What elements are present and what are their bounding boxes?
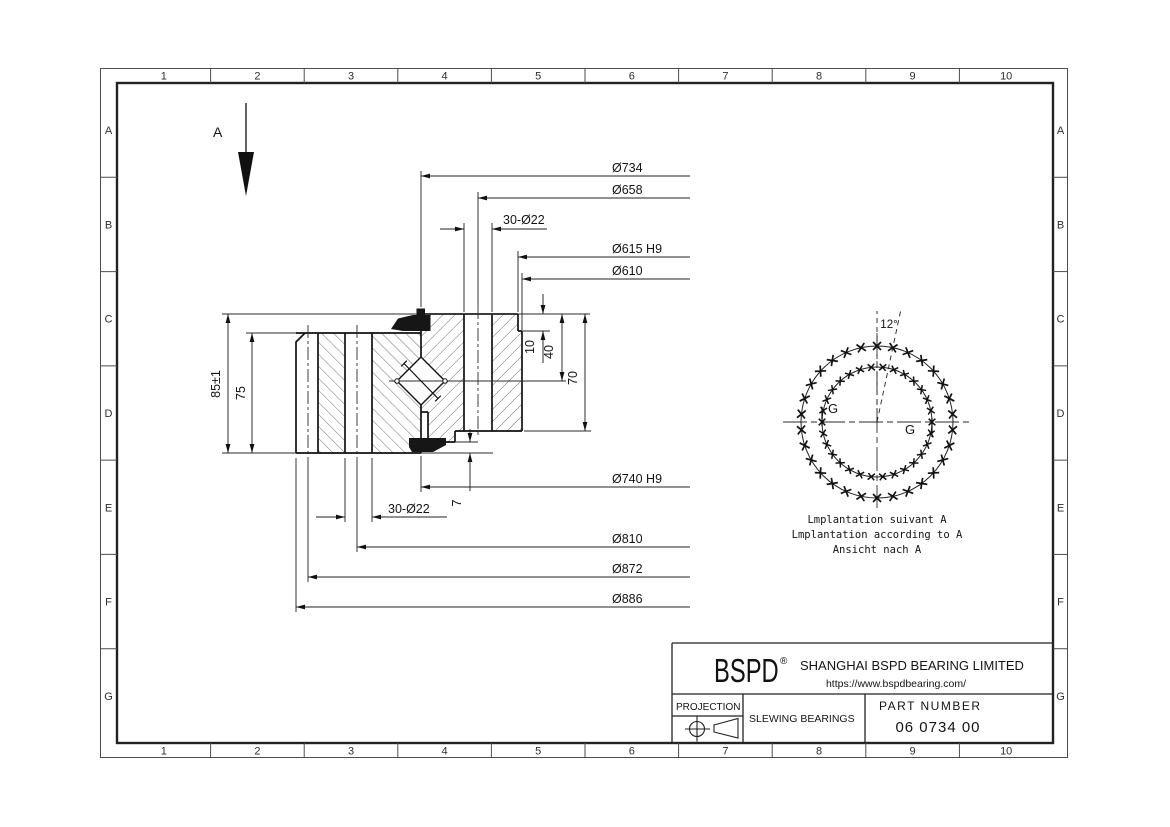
bolt-hole-mark-icon bbox=[828, 450, 837, 459]
frame-column-label: 9 bbox=[910, 71, 916, 83]
bolt-hole-mark-icon bbox=[916, 355, 927, 366]
arrowhead-icon bbox=[492, 227, 501, 232]
bolt-hole-mark-icon bbox=[841, 486, 852, 497]
arrowhead-icon bbox=[541, 331, 546, 340]
dim-label: Ø658 bbox=[612, 183, 643, 197]
frame-row-label: C bbox=[1057, 314, 1065, 326]
bolt-hole-mark-icon bbox=[917, 385, 926, 394]
dim-label: Ø615 H9 bbox=[612, 242, 662, 256]
frame-row-label: B bbox=[1057, 219, 1064, 231]
dim-label: 10 bbox=[523, 340, 537, 354]
arrowhead-icon bbox=[468, 433, 473, 442]
dim-label: Ø740 H9 bbox=[612, 472, 662, 486]
frame-column-label: 3 bbox=[348, 746, 354, 758]
bolt-hole-mark-icon bbox=[856, 343, 865, 352]
frame-column-label: 5 bbox=[535, 71, 541, 83]
frame-row-label: G bbox=[104, 691, 113, 703]
frame-column-label: 2 bbox=[254, 71, 260, 83]
frame-column-label: 5 bbox=[535, 746, 541, 758]
frame-column-label: 8 bbox=[816, 746, 822, 758]
frame-column-label: 7 bbox=[722, 746, 728, 758]
frame-row-label: E bbox=[1057, 502, 1064, 514]
bolt-hole-mark-icon bbox=[944, 440, 954, 450]
bolt-hole-mark-icon bbox=[890, 366, 898, 374]
caption-line: Lmplantation suivant A bbox=[807, 514, 947, 526]
dim-label: 7 bbox=[450, 499, 464, 506]
frame-column-label: 1 bbox=[161, 71, 167, 83]
frame-row-label: F bbox=[105, 597, 112, 609]
grease-label-right: G bbox=[905, 422, 915, 437]
frame-column-label: 9 bbox=[910, 746, 916, 758]
dim-label: Ø810 bbox=[612, 532, 643, 546]
arrowhead-icon bbox=[583, 314, 588, 323]
frame-row-label: A bbox=[105, 125, 113, 137]
dim-label: Ø886 bbox=[612, 592, 643, 606]
arrowhead-icon bbox=[455, 227, 464, 232]
bolt-hole-mark-icon bbox=[903, 486, 914, 497]
bolt-hole-mark-icon bbox=[900, 465, 909, 474]
bolt-hole-mark-icon bbox=[800, 393, 810, 403]
bolt-hole-mark-icon bbox=[819, 407, 827, 415]
engineering-drawing-sheet: 1122334455667788991010AABBCCDDEEFFGG A bbox=[0, 0, 1170, 827]
arrowhead-icon bbox=[522, 277, 531, 282]
dim-label: 30-Ø22 bbox=[388, 502, 430, 516]
frame-column-label: 4 bbox=[442, 71, 448, 83]
dim-label: 75 bbox=[234, 386, 248, 400]
arrowhead-icon bbox=[357, 545, 366, 550]
bolt-hole-mark-icon bbox=[927, 429, 935, 437]
dim-label: 40 bbox=[542, 345, 556, 359]
dim-label: 85±1 bbox=[209, 370, 223, 398]
arrowhead-icon bbox=[226, 444, 231, 453]
frame-column-label: 1 bbox=[161, 746, 167, 758]
frame-column-label: 8 bbox=[816, 71, 822, 83]
arrowhead-icon bbox=[308, 575, 317, 580]
bolt-hole-mark-icon bbox=[900, 370, 909, 379]
bolt-hole-mark-icon bbox=[888, 492, 897, 501]
frame-column-label: 10 bbox=[1000, 71, 1012, 83]
frame-row-label: E bbox=[105, 502, 112, 514]
bolt-hole-mark-icon bbox=[827, 355, 838, 366]
view-arrow-label: A bbox=[213, 124, 223, 140]
bolt-hole-mark-icon bbox=[923, 395, 932, 404]
bolt-hole-mark-icon bbox=[806, 455, 817, 466]
frame-row-label: D bbox=[1057, 408, 1065, 420]
arrowhead-icon bbox=[468, 453, 473, 462]
dim-label: 30-Ø22 bbox=[503, 213, 545, 227]
bolt-hole-mark-icon bbox=[800, 440, 810, 450]
outer-ring-hatch bbox=[318, 333, 421, 453]
bolt-hole-mark-icon bbox=[845, 370, 854, 379]
arrowhead-icon bbox=[541, 305, 546, 314]
frame-column-label: 6 bbox=[629, 71, 635, 83]
projection-label: PROJECTION bbox=[676, 702, 740, 713]
hole-angle-label: 12° bbox=[880, 319, 897, 331]
caption-line: Lmplantation according to A bbox=[792, 529, 963, 541]
frame-row-label: C bbox=[105, 314, 113, 326]
bolt-hole-mark-icon bbox=[827, 478, 838, 489]
bolt-hole-mark-icon bbox=[923, 440, 932, 449]
frame-row-label: B bbox=[105, 219, 112, 231]
arrowhead-icon bbox=[250, 444, 255, 453]
frame-column-label: 3 bbox=[348, 71, 354, 83]
bolt-hole-mark-icon bbox=[856, 470, 864, 478]
bolt-pattern-view: 12° G G Lmplantation suivant A Lmplantat… bbox=[783, 311, 971, 556]
bolt-hole-mark-icon bbox=[856, 492, 865, 501]
frame-column-label: 4 bbox=[442, 746, 448, 758]
bolt-hole-mark-icon bbox=[937, 455, 948, 466]
bolt-hole-mark-icon bbox=[917, 450, 926, 459]
arrowhead-icon bbox=[336, 515, 345, 520]
bolt-hole-mark-icon bbox=[806, 379, 817, 390]
dim-label: Ø610 bbox=[612, 264, 643, 278]
first-angle-projection-icon bbox=[685, 717, 738, 742]
bolt-hole-mark-icon bbox=[841, 347, 852, 358]
bolt-hole-mark-icon bbox=[822, 440, 831, 449]
arrowhead-icon bbox=[226, 314, 231, 323]
bolt-hole-mark-icon bbox=[845, 465, 854, 474]
product-type: SLEWING BEARINGS bbox=[749, 713, 855, 725]
bolt-hole-mark-icon bbox=[944, 393, 954, 403]
bottom-seal bbox=[409, 438, 446, 452]
part-number-value: 06 0734 00 bbox=[895, 719, 980, 736]
grease-label-left: G bbox=[828, 401, 838, 416]
frame-row-label: G bbox=[1056, 691, 1065, 703]
bearing-cross-section bbox=[222, 171, 591, 612]
bolt-hole-mark-icon bbox=[819, 429, 827, 437]
arrowhead-icon bbox=[583, 422, 588, 431]
frame-column-label: 7 bbox=[722, 71, 728, 83]
frame-row-label: D bbox=[105, 408, 113, 420]
frame-column-label: 10 bbox=[1000, 746, 1012, 758]
bolt-hole-mark-icon bbox=[828, 385, 837, 394]
dim-label: Ø734 bbox=[612, 161, 643, 175]
dim-label: Ø872 bbox=[612, 562, 643, 576]
arrowhead-icon bbox=[518, 255, 527, 260]
caption-line: Ansicht nach A bbox=[833, 544, 922, 556]
arrowhead-icon bbox=[560, 372, 565, 381]
part-number-label: PART NUMBER bbox=[879, 699, 982, 713]
section-view-arrow: A bbox=[213, 103, 254, 196]
frame-row-label: F bbox=[1057, 597, 1064, 609]
title-block: BSPD ® SHANGHAI BSPD BEARING LIMITED htt… bbox=[672, 643, 1053, 743]
arrowhead-icon bbox=[560, 314, 565, 323]
company-website: https://www.bspdbearing.com/ bbox=[826, 678, 966, 690]
top-seal bbox=[391, 315, 431, 331]
company-name: SHANGHAI BSPD BEARING LIMITED bbox=[800, 658, 1024, 673]
bolt-hole-mark-icon bbox=[937, 379, 948, 390]
frame-column-label: 6 bbox=[629, 746, 635, 758]
bolt-hole-mark-icon bbox=[856, 366, 864, 374]
registered-mark-icon: ® bbox=[780, 656, 788, 667]
bolt-hole-mark-icon bbox=[903, 347, 914, 358]
arrowhead-icon bbox=[296, 605, 305, 610]
frame-row-label: A bbox=[1057, 125, 1065, 137]
top-seal-lip bbox=[417, 309, 426, 316]
arrowhead-icon bbox=[372, 515, 381, 520]
dim-label: 70 bbox=[566, 371, 580, 385]
company-logo: BSPD bbox=[714, 653, 779, 690]
bolt-hole-mark-icon bbox=[916, 478, 927, 489]
frame-column-label: 2 bbox=[254, 746, 260, 758]
view-caption: Lmplantation suivant A Lmplantation acco… bbox=[792, 514, 963, 556]
view-arrow-head-icon bbox=[238, 152, 254, 196]
arrowhead-icon bbox=[250, 333, 255, 342]
arrowhead-icon bbox=[478, 196, 487, 201]
bolt-hole-mark-icon bbox=[890, 470, 898, 478]
bolt-hole-mark-icon bbox=[927, 407, 935, 415]
roller-center-left bbox=[395, 379, 399, 383]
arrowhead-icon bbox=[421, 174, 430, 179]
roller-center-right bbox=[443, 379, 447, 383]
arrowhead-icon bbox=[421, 485, 430, 490]
